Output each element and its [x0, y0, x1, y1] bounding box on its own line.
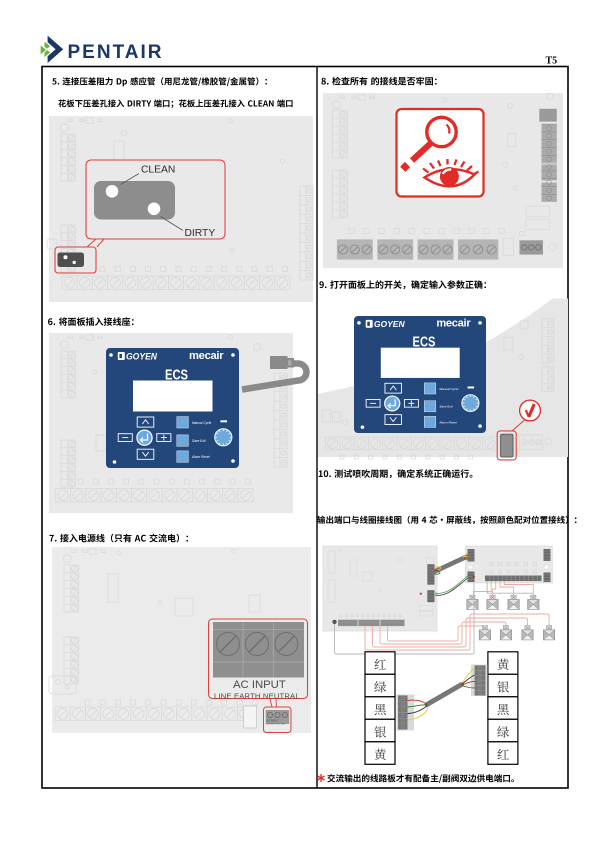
svg-text:DIRTY: DIRTY	[185, 228, 216, 239]
svg-text:mecair: mecair	[436, 318, 471, 330]
svg-text:AC INPUT: AC INPUT	[267, 719, 280, 723]
svg-text:AC INPUT: AC INPUT	[233, 679, 286, 691]
svg-text:Alarm Reset: Alarm Reset	[191, 455, 210, 459]
svg-text:Save Exit: Save Exit	[192, 439, 206, 443]
svg-text:T5: T5	[546, 56, 558, 67]
svg-text:Alarm Reset: Alarm Reset	[438, 420, 456, 424]
svg-text:LINE EARTH NEUTRAL: LINE EARTH NEUTRAL	[266, 723, 285, 726]
svg-text:GOYEN: GOYEN	[374, 319, 406, 329]
svg-text:CLEAN: CLEAN	[141, 165, 175, 176]
svg-text:LINE EARTH NEUTRAL: LINE EARTH NEUTRAL	[214, 692, 300, 701]
svg-text:Manual Cycle: Manual Cycle	[192, 421, 212, 425]
svg-text:mecair: mecair	[189, 350, 224, 362]
svg-text:Manual Cycle: Manual Cycle	[439, 387, 458, 391]
svg-text:Save Exit: Save Exit	[439, 405, 452, 409]
svg-text:PENTAIR: PENTAIR	[68, 42, 164, 63]
svg-text:GOYEN: GOYEN	[126, 351, 158, 361]
